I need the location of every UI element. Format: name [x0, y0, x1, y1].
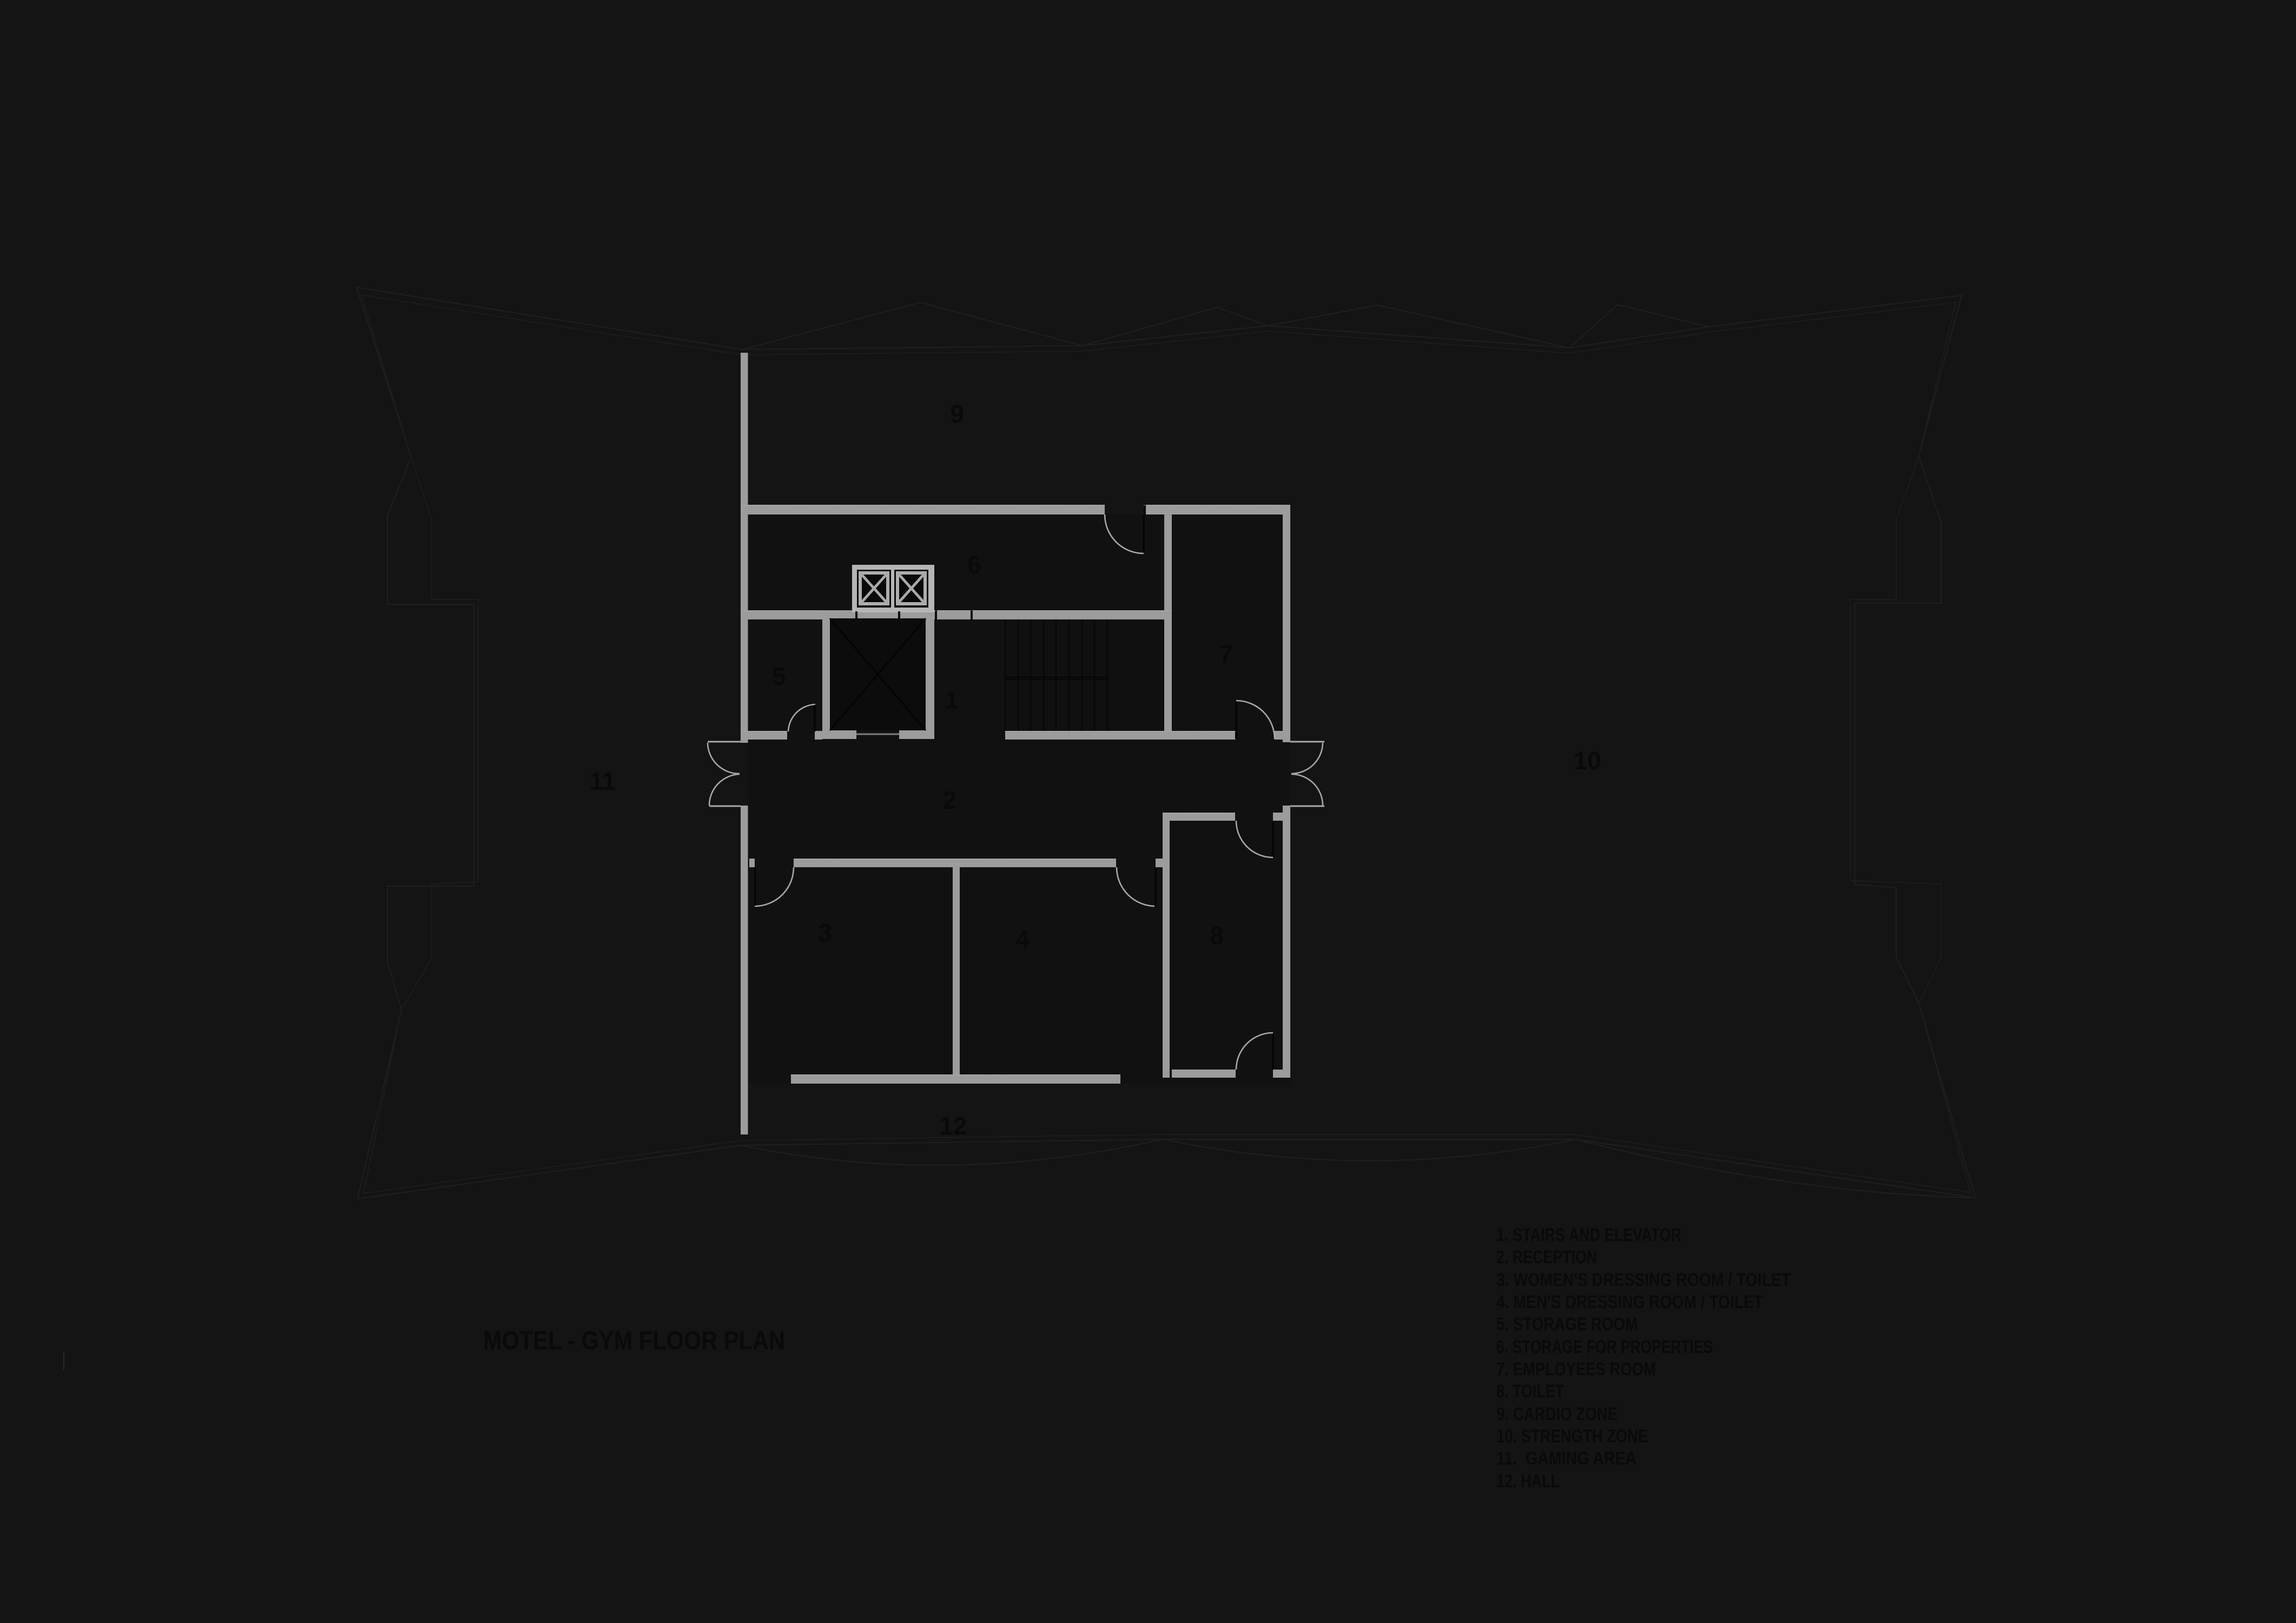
svg-text:9. CARDIO ZONE: 9. CARDIO ZONE — [1496, 1404, 1618, 1424]
svg-text:9: 9 — [950, 400, 964, 428]
svg-text:8. TOILET: 8. TOILET — [1496, 1381, 1564, 1402]
svg-text:MOTEL - GYM FLOOR PLAN: MOTEL - GYM FLOOR PLAN — [483, 1327, 785, 1355]
svg-text:11: 11 — [590, 767, 616, 795]
svg-text:5. STORAGE ROOM: 5. STORAGE ROOM — [1496, 1314, 1638, 1335]
svg-text:2. RECEPTION: 2. RECEPTION — [1496, 1247, 1597, 1268]
svg-text:8: 8 — [1210, 921, 1224, 949]
svg-text:11. GAMING AREA: 11. GAMING AREA — [1496, 1448, 1637, 1469]
svg-text:3: 3 — [818, 919, 832, 947]
svg-text:10: 10 — [1573, 747, 1601, 775]
svg-text:2: 2 — [942, 786, 956, 814]
svg-text:5: 5 — [772, 662, 786, 690]
svg-text:1: 1 — [945, 686, 959, 714]
svg-text:3. WOMEN'S DRESSING ROOM / TOI: 3. WOMEN'S DRESSING ROOM / TOILET — [1496, 1270, 1791, 1290]
svg-text:10. STRENGTH ZONE: 10. STRENGTH ZONE — [1496, 1426, 1648, 1447]
svg-text:12. HALL: 12. HALL — [1496, 1471, 1560, 1492]
svg-text:6. STORAGE FOR PROPERTIES: 6. STORAGE FOR PROPERTIES — [1496, 1337, 1713, 1357]
svg-text:6: 6 — [967, 551, 981, 579]
svg-text:7. EMPLOYEES ROOM: 7. EMPLOYEES ROOM — [1496, 1359, 1656, 1380]
svg-text:7: 7 — [1219, 640, 1233, 668]
svg-text:12: 12 — [939, 1112, 967, 1140]
svg-text:4: 4 — [1015, 925, 1030, 953]
svg-text:1. STAIRS AND ELEVATOR: 1. STAIRS AND ELEVATOR — [1496, 1225, 1681, 1245]
svg-text:4. MEN'S DRESSING ROOM / TOILE: 4. MEN'S DRESSING ROOM / TOILET — [1496, 1292, 1763, 1312]
